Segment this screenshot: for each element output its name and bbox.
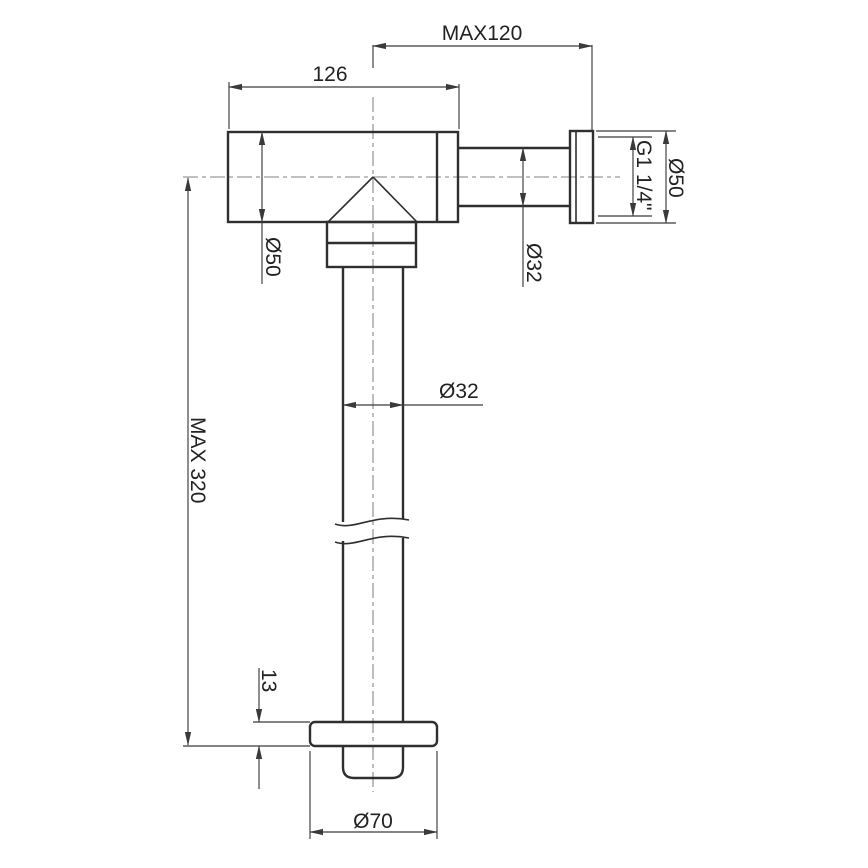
label-max120: MAX120	[442, 22, 523, 45]
label-dia70: Ø70	[353, 810, 393, 833]
extension-lines	[183, 45, 676, 839]
break-line-upper	[335, 518, 409, 525]
funnel-right-line	[373, 177, 417, 222]
label-dia50-flange: Ø50	[664, 158, 687, 198]
label-dia32-downpipe: Ø32	[439, 380, 479, 403]
label-126: 126	[312, 63, 347, 86]
label-dia50-body: Ø50	[261, 237, 284, 277]
label-max320: MAX 320	[186, 417, 209, 503]
label-dia32-inlet: Ø32	[522, 243, 545, 283]
flush-valve-drawing: MAX120 126 Ø50 Ø32 G1 1/4" Ø50 MAX 320 Ø…	[0, 0, 868, 868]
label-thread-g114: G1 1/4"	[632, 140, 655, 211]
dimension-lines	[188, 46, 666, 832]
label-13: 13	[257, 669, 280, 692]
valve-body-outline	[228, 131, 593, 778]
centerlines	[183, 97, 620, 792]
outlet-collar	[327, 222, 416, 267]
funnel-left-line	[328, 177, 373, 222]
break-line-lower	[335, 536, 409, 543]
technical-drawing-canvas: MAX120 126 Ø50 Ø32 G1 1/4" Ø50 MAX 320 Ø…	[0, 0, 868, 868]
